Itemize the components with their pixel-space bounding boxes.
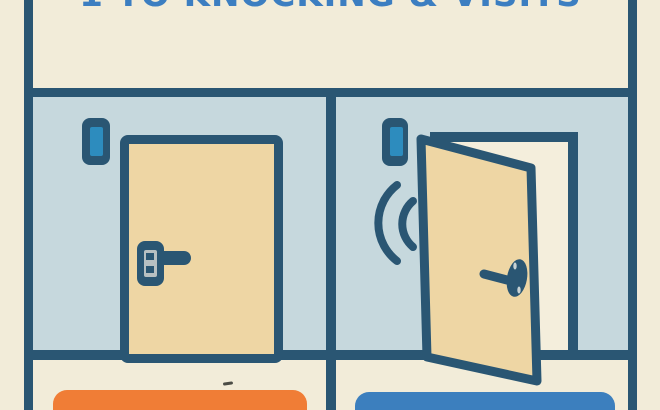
infographic-canvas: 1 TO KNOCKING & VISITS — [0, 0, 660, 410]
right-caption-button[interactable] — [355, 392, 615, 410]
knock-sound-waves-icon — [378, 185, 413, 261]
open-door-illustration — [0, 0, 660, 410]
left-caption-button[interactable] — [53, 390, 307, 410]
